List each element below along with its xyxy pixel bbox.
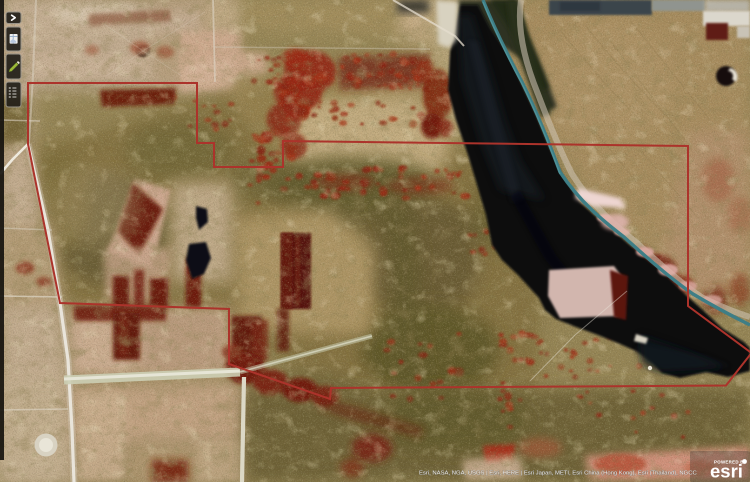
svg-text:esri: esri (710, 461, 743, 482)
svg-text:Esri, NASA, NGA, USGS | Esri,: Esri, NASA, NGA, USGS | Esri, HERE | Esr… (419, 471, 697, 477)
